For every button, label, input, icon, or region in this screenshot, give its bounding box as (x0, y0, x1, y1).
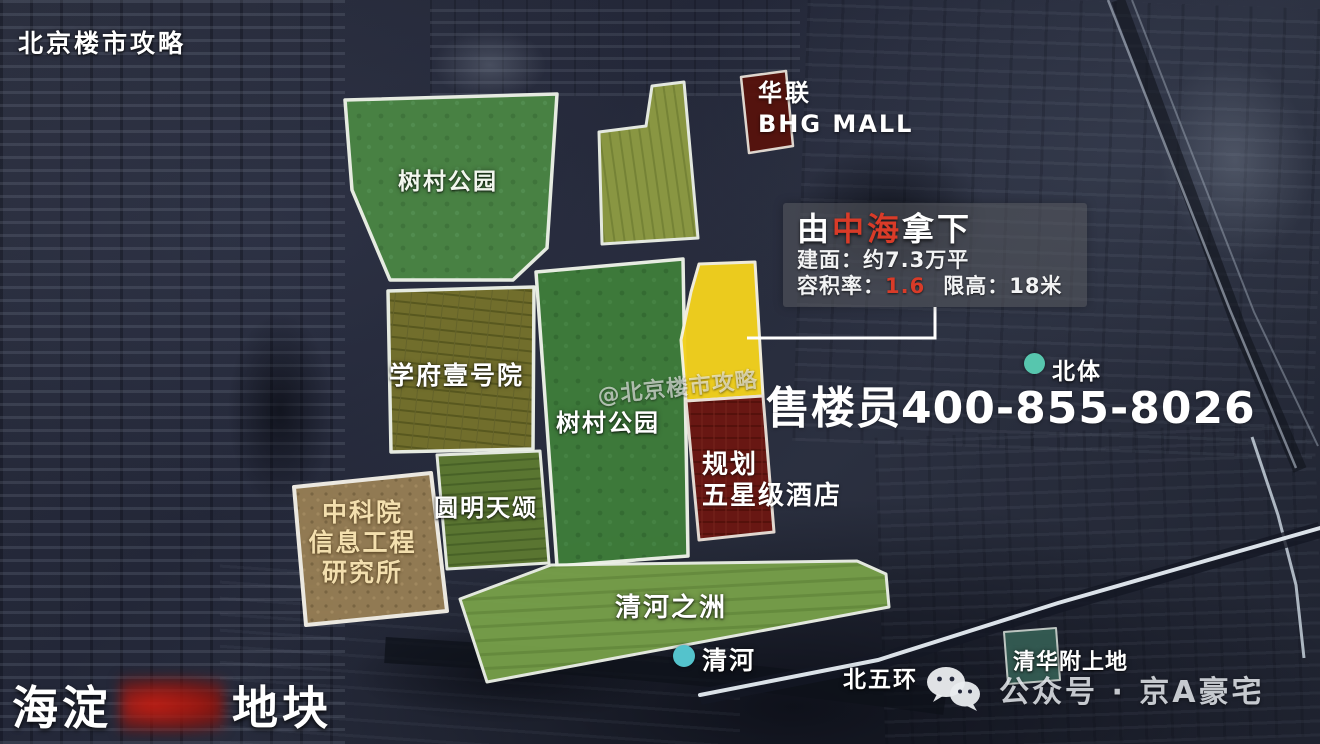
callout-title-suffix: 拿下 (902, 210, 972, 248)
title-prefix: 海淀 (12, 672, 112, 738)
parcel-label-xuefu: 学府壹号院 (389, 356, 524, 392)
wechat-account-label: 公众号 · 京A豪宅 (999, 667, 1265, 711)
callout-far-value: 1.6 (885, 274, 925, 298)
callout-connector-line (747, 307, 935, 338)
qinghe-river-dot-icon (673, 645, 695, 667)
bhg-line1: 华联 (758, 78, 913, 109)
cas-line1: 中科院 (300, 498, 425, 528)
bhg-line2: BHG MALL (758, 109, 913, 140)
censored-red-text (120, 677, 224, 733)
hotel-line2: 五星级酒店 (702, 481, 842, 512)
callout-title-highlight: 中海 (832, 210, 902, 248)
wechat-footer: 公众号 · 京A豪宅 (925, 666, 1265, 712)
callout-title-prefix: 由 (797, 210, 832, 248)
parcel-label-bhg: 华联 BHG MALL (758, 78, 913, 140)
parcel-label-cas: 中科院 信息工程 研究所 (300, 498, 425, 588)
hotel-line1: 规划 (702, 450, 842, 481)
wechat-icon (925, 666, 983, 712)
satellite-map: 树村公园 学府壹号院 树村公园 圆明天颂 中科院 信息工程 研究所 规划 五星级… (0, 0, 1320, 744)
cas-line3: 研究所 (300, 558, 425, 588)
page-title: 海淀 地块 (12, 672, 332, 738)
title-suffix: 地块 (232, 672, 332, 738)
parcel-label-qinghe-strip: 清河之洲 (615, 587, 727, 624)
parcel-label-park-top: 树村公园 (398, 162, 498, 196)
zhonghai-callout-box: 由中海拿下 建面：约7.3万平 容积率：1.6限高：18米 (783, 203, 1087, 307)
callout-height-value: 18米 (1009, 274, 1062, 298)
cas-line2: 信息工程 (300, 528, 425, 558)
parcel-label-yuanming: 圆明天颂 (434, 488, 538, 523)
beiti-dot-icon (1024, 353, 1045, 374)
callout-area-line: 建面：约7.3万平 (797, 247, 1087, 273)
parcel-label-hotel: 规划 五星级酒店 (702, 450, 842, 512)
callout-height-label: 限高： (943, 274, 1009, 298)
watermark-top-left: 北京楼市攻略 (18, 24, 186, 60)
poi-label-beiwuhuan: 北五环 (843, 660, 918, 694)
callout-far-label: 容积率： (797, 274, 885, 298)
poi-label-qinghe-river: 清河 (702, 641, 756, 677)
parcel-green-strip (599, 82, 698, 244)
callout-title: 由中海拿下 (797, 211, 1087, 247)
phone-overlay: 售楼员400-855-8026 (766, 372, 1256, 436)
callout-far-height-line: 容积率：1.6限高：18米 (797, 273, 1087, 299)
